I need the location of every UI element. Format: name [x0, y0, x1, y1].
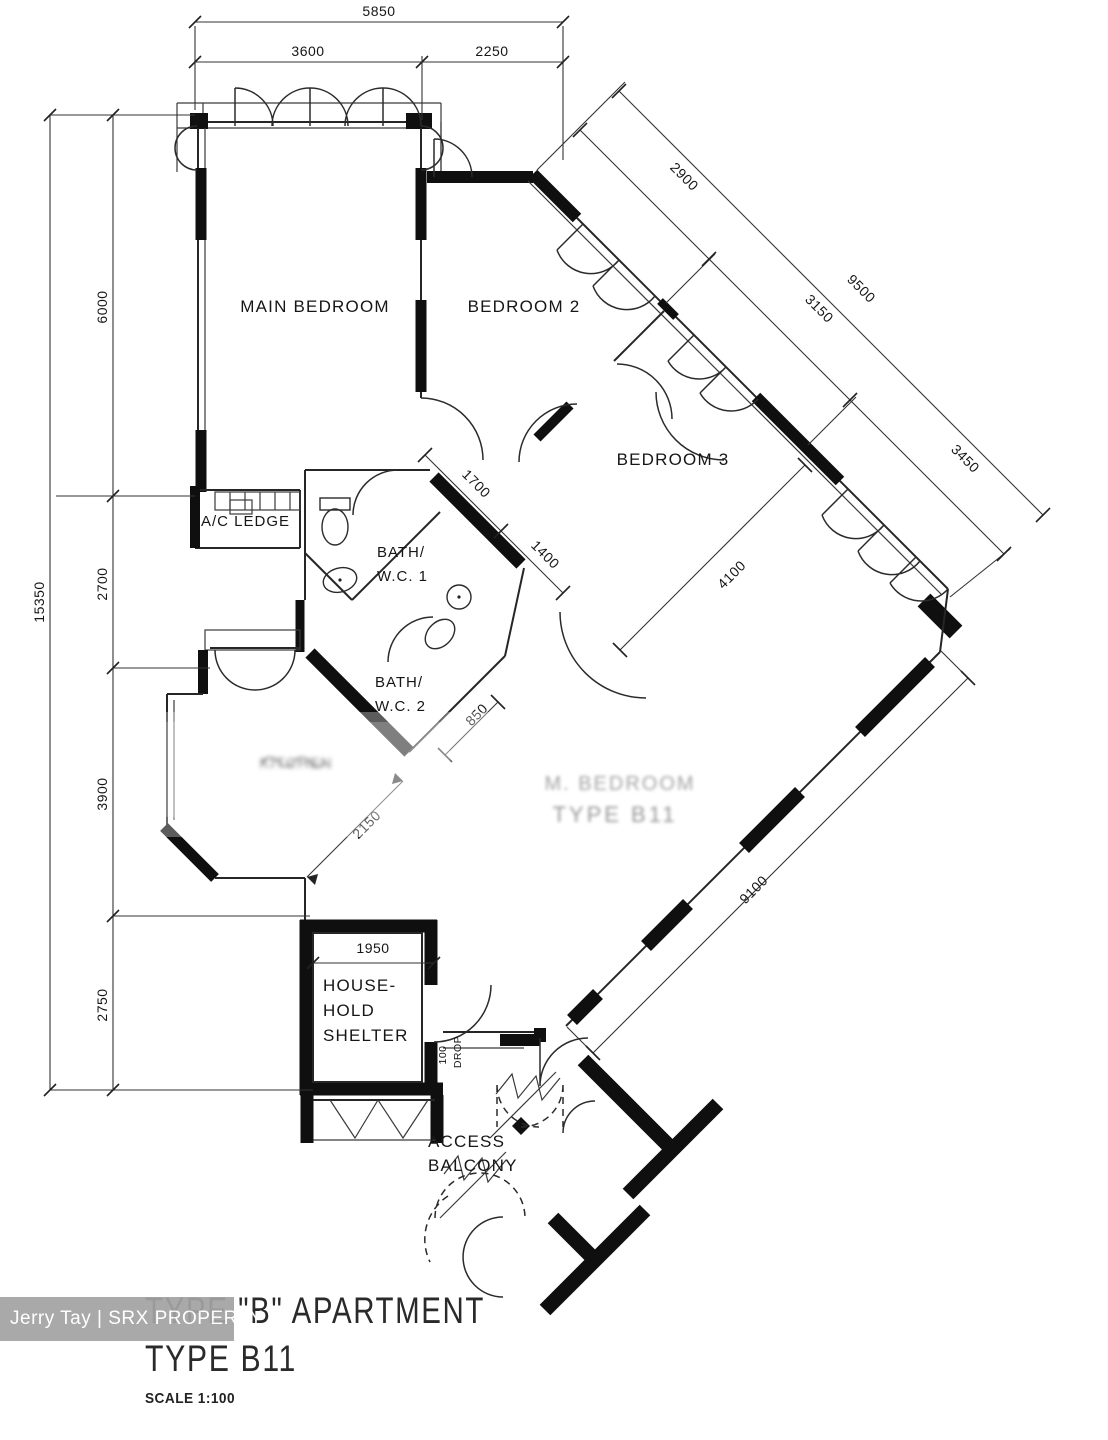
- room-label-access-line2: BALCONY: [428, 1156, 518, 1175]
- walls-layer: [164, 103, 956, 1310]
- toilet-tank-icon: [320, 498, 350, 510]
- dim-left-seg1: 6000: [94, 290, 110, 323]
- dim-left-overall: 15350: [31, 581, 47, 622]
- drop-value-label: 100: [437, 1045, 449, 1064]
- dim-ne-overall: 9500: [844, 271, 879, 306]
- floor-plan-drawing: 5850 3600 2250 15350 6000 2700 3900 2750…: [0, 0, 1108, 1440]
- drop-text-label: DROP: [452, 1036, 464, 1068]
- dim-top-left: 3600: [291, 43, 324, 59]
- dim-ne-seg2: 3150: [802, 291, 837, 326]
- windows-layer: [175, 88, 948, 690]
- dim-shelter-width: 1950: [356, 940, 389, 956]
- dim-bedroom3-width: 4100: [714, 557, 749, 592]
- dim-left-seg3: 3900: [94, 777, 110, 810]
- room-label-bath-2-line1: BATH/: [375, 674, 423, 691]
- dim-lobby-b: 1400: [528, 537, 563, 572]
- dim-ne-seg1: 2900: [667, 159, 702, 194]
- room-label-shelter-line3: SHELTER: [323, 1026, 409, 1045]
- dim-top-right: 2250: [475, 43, 508, 59]
- room-label-shelter-line1: HOUSE-: [323, 976, 396, 995]
- room-label-main-bedroom: MAIN BEDROOM: [240, 297, 389, 316]
- dim-corridor: 9100: [736, 872, 771, 907]
- toilet-bowl-icon: [322, 509, 348, 545]
- dim-lobby-a: 1700: [459, 466, 494, 501]
- dim-left-seg2: 2700: [94, 567, 110, 600]
- plan-scale-label: SCALE 1:100: [145, 1390, 235, 1407]
- room-label-ac-ledge: A/C LEDGE: [201, 513, 290, 530]
- room-label-bath-2-line2: W.C. 2: [375, 698, 426, 715]
- room-label-bedroom-3: BEDROOM 3: [617, 450, 730, 469]
- room-label-bath-1-line1: BATH/: [377, 544, 425, 561]
- room-label-access-line1: ACCESS: [428, 1132, 505, 1151]
- room-label-shelter-line2: HOLD: [323, 1001, 375, 1020]
- faded-stamp-line1: M. BEDROOM: [544, 773, 695, 795]
- room-label-bath-1-line2: W.C. 1: [377, 568, 428, 585]
- dim-left-seg4: 2750: [94, 988, 110, 1021]
- toilet-bowl-icon: [419, 613, 460, 654]
- watermark-text: Jerry Tay | SRX PROPERTY: [10, 1308, 263, 1330]
- faded-stamp-line2: TYPE B11: [552, 802, 677, 827]
- dim-ne-seg3: 3450: [948, 441, 983, 476]
- plan-title-line2: TYPE B11: [145, 1338, 297, 1379]
- watermark-bar: Jerry Tay | SRX PROPERTY: [0, 1297, 234, 1341]
- dim-top-overall: 5850: [362, 3, 395, 19]
- floor-plan-page: 5850 3600 2250 15350 6000 2700 3900 2750…: [0, 0, 1108, 1440]
- faded-kitchen-label: KITCHEN: [260, 755, 333, 772]
- room-label-bedroom-2: BEDROOM 2: [468, 297, 581, 316]
